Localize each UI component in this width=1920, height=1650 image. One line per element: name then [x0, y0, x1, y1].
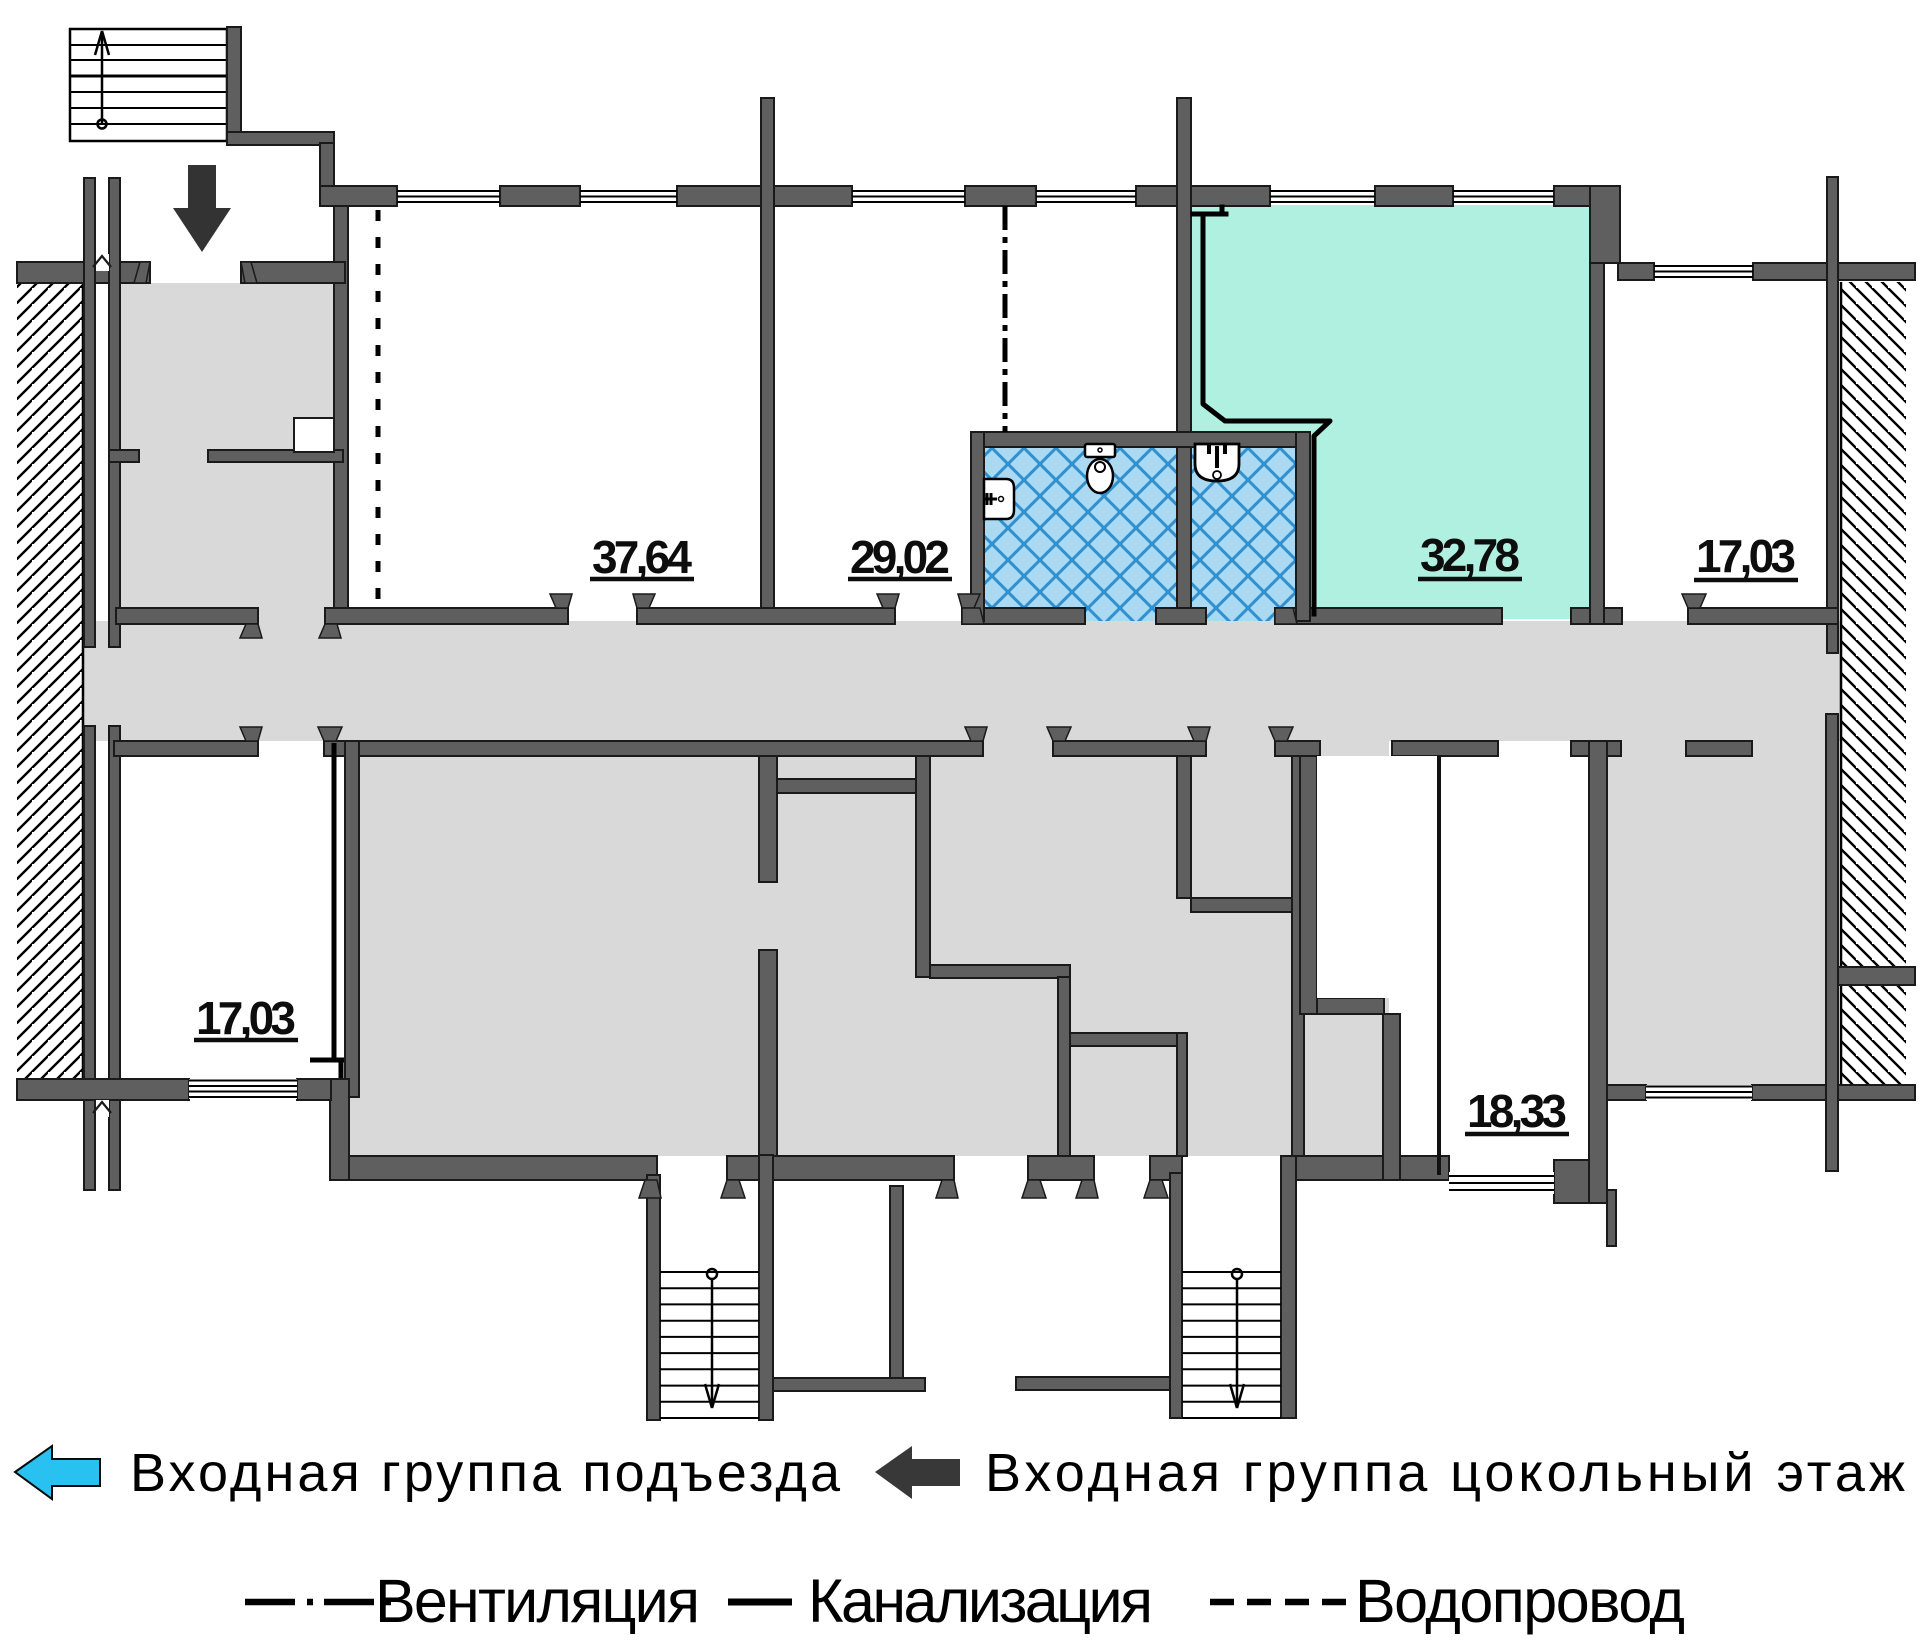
svg-text:Водопровод: Водопровод: [1355, 1567, 1685, 1635]
svg-text:Вентиляция: Вентиляция: [375, 1567, 700, 1635]
svg-text:Канализация: Канализация: [808, 1567, 1153, 1635]
svg-text:17,03: 17,03: [1696, 530, 1796, 582]
svg-text:Входная группа подъезда: Входная группа подъезда: [130, 1443, 841, 1503]
svg-text:37,64: 37,64: [592, 531, 692, 583]
svg-text:32,78: 32,78: [1420, 529, 1520, 581]
svg-text:29,02: 29,02: [850, 531, 950, 583]
svg-text:17,03: 17,03: [196, 992, 296, 1044]
svg-text:Входная группа цокольный этаж: Входная группа цокольный этаж: [985, 1443, 1905, 1503]
svg-text:18,33: 18,33: [1467, 1085, 1567, 1137]
